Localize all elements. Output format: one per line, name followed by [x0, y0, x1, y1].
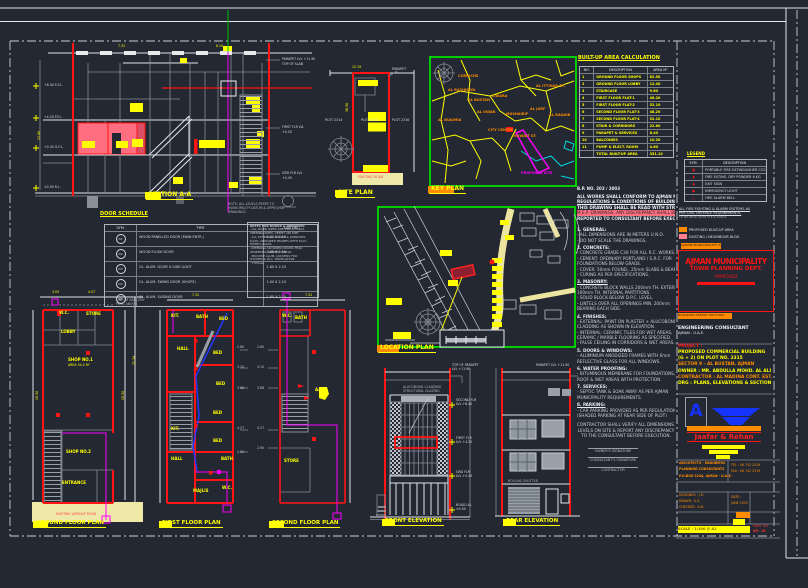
area-row-no: 6: [580, 109, 593, 115]
annotation-text: TOP OF SLAB: [282, 63, 303, 66]
stamp-line3: APPROVED: [679, 274, 773, 279]
door-symbol-cell: D1: [105, 232, 136, 246]
annotation-text: +0.45: [282, 177, 292, 180]
note-line: - FALSE CEILING IN CORRIDORS & WET AREAS…: [577, 340, 675, 345]
rear-elevation-title-label: REAR ELEVATION: [506, 518, 558, 524]
annotation-text: BED: [213, 351, 222, 355]
legend-row: ◆ EXIT SIGN: [685, 180, 766, 187]
area-row-no: 5: [580, 102, 593, 108]
annotation-text: TEL : 06 742 2318: [731, 464, 760, 467]
note-line: - CURING AS PER SPECIFICATIONS.: [577, 272, 675, 277]
annotation-text: 3.66: [237, 387, 244, 390]
annotation-text: 3.10: [237, 366, 244, 369]
key-plan-area-label: AL OWAN: [477, 110, 495, 114]
note-line: - SEPTIC TANK & SOAK AWAY AS PER AJMAN: [577, 389, 675, 394]
annotation-text: 2.80: [237, 346, 244, 349]
annotation-text: EXISTING ASPHALT ROAD: [56, 513, 96, 516]
annotation-text: AREA 54.0 M²: [68, 364, 90, 367]
area-row-desc: FIRST FLOOR FLAT-1: [593, 95, 646, 101]
legend-row: ● EMERGENCY LIGHT: [685, 187, 766, 194]
annotation-text: PLOT 2314: [325, 119, 342, 122]
second-floor-title-label: SECOND FLOOR PLAN: [272, 520, 338, 526]
door-type-cell: WOOD FLUSH DOOR: [136, 247, 263, 261]
annotation-text: B.P. NO. 203 / 2003: [577, 187, 620, 191]
annotation-text: A/C: [315, 388, 323, 392]
annotation-text: 36.58: [346, 103, 349, 112]
stamp-underline: [697, 282, 755, 285]
area-row-desc: GROUND FLOOR SHOPS: [593, 74, 646, 80]
fire-note: ALL FIRE FIGHTING & ALARM SYSTEMS ASPER …: [679, 207, 750, 220]
annotation-text: +0.45 G.F.L.: [44, 146, 63, 149]
key-plan-area-label: KUWAIT ST.: [514, 134, 537, 138]
area-row-no: 1: [580, 74, 593, 80]
annotation-text: LVL +4.20: [456, 441, 472, 444]
key-plan-area-label: PROPOSED SITE: [521, 171, 552, 175]
door-type-cell: GL. ALUM. SLIDING DOOR: [136, 292, 263, 306]
area-calc-row: 10 BALCONIES 10.20: [580, 136, 673, 143]
annotation-text: DATE :: [731, 496, 741, 499]
area-row-value: 12.40: [647, 81, 673, 87]
section-title-label: SECTION A-A: [148, 191, 191, 198]
door-symbol-icon: D4: [116, 279, 126, 289]
area-row-desc: PUMP & ELECT. ROOM: [593, 144, 646, 150]
area-row-value: 48.20: [647, 95, 673, 101]
legend-symbol-icon: ◆: [685, 181, 702, 187]
legend-symbol-icon: ▣: [685, 167, 702, 173]
note-line: MUNICIPALITY REQUIREMENTS.: [577, 395, 675, 400]
area-swatches: PROPOSED BUILT-UP AREA EXISTING / NEIGHB…: [679, 225, 740, 239]
project-text-block: PROJECT :PROPOSED COMMERCIAL BUILDING(G …: [678, 344, 772, 387]
note-line: REGULATIONS & CONDITIONS OF BUILDING PER…: [577, 199, 675, 204]
area-header-desc: DESCRIPTION: [593, 67, 646, 73]
legend-table: SYM. DESCRIPTION ▣ PORTABLE FIRE EXTINGU…: [684, 159, 767, 202]
note-line: - BITUMINOUS MEMBRANE FOR FOUNDATIONS,: [577, 371, 675, 376]
swatch-color-box: [679, 234, 687, 239]
annotation-text: 4.27: [237, 427, 244, 430]
consultant-logo: A: [685, 397, 707, 427]
note-line: REFLECTIVE GLASS FOR ALL WINDOWS.: [577, 359, 675, 364]
legend-rows: ▣ PORTABLE FIRE EXTINGUISHER CO2 ▮ FIRE …: [685, 166, 766, 201]
signature-line: OWNER'S SIGNATURE: [588, 448, 638, 453]
annotation-text: 19.50: [122, 391, 125, 400]
note-line: - ALUMINIUM ANODIZED FRAMES WITH 6mm: [577, 353, 675, 358]
legend-row: ▮ FIRE EXTING. DRY POWDER 6 KG: [685, 173, 766, 180]
annotation-text: 3.66: [257, 387, 264, 390]
note-line: - DO NOT SCALE THE DRAWINGS.: [577, 238, 675, 243]
annotation-text: 12.60: [38, 131, 41, 140]
note-line: - ALL DIMENSIONS ARE IN METERS U.N.O.: [577, 232, 675, 237]
stamp-line2: TOWN PLANNING DEPT.: [679, 266, 773, 272]
annotation-text: PLANNING CONSULTANTS: [679, 468, 724, 471]
door-symbol-cell: D5: [105, 292, 136, 306]
legend-desc-cell: FIRE EXTING. DRY POWDER 6 KG: [702, 174, 766, 180]
area-calc-header-row: NO. DESCRIPTION AREA M²: [580, 67, 673, 73]
area-row-value: 8.40: [647, 130, 673, 136]
legend-symbol-icon: ▮: [685, 174, 702, 180]
area-calc-row: 4 FIRST FLOOR FLAT-1 48.20: [580, 94, 673, 101]
annotation-text: STORE: [284, 459, 299, 463]
area-calc-row: 3 STAIRCASE 9.80: [580, 87, 673, 94]
key-plan-area-label: LIWARA: [492, 94, 507, 98]
area-row-no: 3: [580, 88, 593, 94]
legend-row: △ FIRE ALARM BELL: [685, 194, 766, 201]
key-plan-area-label: AL JURF: [530, 107, 545, 111]
legend-symbol-icon: ●: [685, 188, 702, 194]
legend-title: LEGEND: [687, 151, 705, 156]
annotation-text: EXISTING ROAD: [358, 176, 383, 179]
note-line: REPORTED TO CONSULTANT BEFORE EXECUTION.: [577, 216, 675, 221]
annotation-text: +8.40 S.F.L.: [44, 84, 63, 87]
annotation-text: PARAPET LVL +11.90: [282, 58, 315, 61]
legend-header-row: SYM. DESCRIPTION: [685, 160, 766, 166]
annotation-text: BED: [216, 382, 225, 386]
annotation-text: AR - 01: [753, 530, 766, 533]
door-type-cell: WOOD PANELLED DOOR (MAIN ENTR.): [136, 232, 263, 246]
area-row-value: 48.20: [647, 109, 673, 115]
key-plan-area-label: CITY CENTRE: [488, 128, 513, 132]
legend-row: ▣ PORTABLE FIRE EXTINGUISHER CO2: [685, 166, 766, 173]
swatch-rows: PROPOSED BUILT-UP AREA EXISTING / NEIGHB…: [679, 227, 740, 239]
key-plan-area-label: AL ITTIHAD ST.: [536, 84, 565, 88]
municipality-stamp: AJMAN MUNICIPALITY TOWN PLANNING DEPT. A…: [678, 250, 774, 312]
door-notes-lines: NOTES FOR DOORS & WINDOWS:- ALL DOOR SIZ…: [250, 225, 317, 266]
annotation-text: BATH: [221, 457, 233, 461]
area-row-desc: STAIRCASE: [593, 88, 646, 94]
annotation-text: DESIGNED : J.R.: [679, 494, 704, 497]
annotation-text: P.O.BOX 2244, AJMAN - U.A.E.: [679, 475, 732, 478]
area-calc-row: 7 SECOND FLOOR FLAT-4 52.10: [580, 115, 673, 122]
annotation-text: BATH: [196, 315, 208, 319]
annotation-text: W.C.: [282, 314, 292, 318]
annotation-text: 3.05: [52, 291, 59, 294]
annotation-text: LVL +8.40: [456, 403, 472, 406]
door-note-line: - TYPICAL: [250, 262, 317, 266]
area-row-no: [580, 151, 593, 157]
area-row-value: 4.60: [647, 144, 673, 150]
annotation-text: STRUCTURAL GLAZING: [403, 390, 440, 393]
annotation-text: FAX : 06 742 2319: [731, 470, 760, 473]
annotation-text: ROLLING SHUTTER: [508, 480, 538, 483]
annotation-text: +4.20: [282, 131, 292, 134]
area-calc-row: 11 PUMP & ELECT. ROOM 4.60: [580, 143, 673, 150]
swatch-row: EXISTING / NEIGHBOUR BLDG.: [679, 234, 740, 239]
note-line: [577, 221, 675, 225]
annotation-text: PARAPET LVL +11.90: [536, 364, 569, 367]
note-line: (SHADED PARKING AT REAR SIDE OF PLOT): [577, 413, 675, 418]
annotation-text: BATH: [295, 316, 307, 320]
annotation-layer: SECTION A-A SITE PLAN KEY PLAN LOCATION …: [0, 0, 808, 588]
annotation-text: JUNE 2003: [731, 502, 748, 505]
legend-header-sym: SYM.: [685, 160, 702, 166]
annotation-text: 2.90: [257, 447, 264, 450]
annotation-text: GRD FLR LVL: [282, 172, 302, 175]
scale-bar: SCALE : 1:100 @ A1: [678, 526, 750, 533]
door-schedule-header-sym: SYM.: [105, 225, 136, 231]
annotation-text: +4.20 F.F.L.: [44, 116, 62, 119]
key-plan-area-label: AL RASHIDIYA: [448, 88, 475, 92]
project-line: OWNER : MR. ABDULLA MOHD. AL ALI: [678, 369, 772, 375]
swatch-row: PROPOSED BUILT-UP AREA: [679, 227, 740, 232]
area-row-desc: PARAPET & SERVICES: [593, 130, 646, 136]
legend-desc-cell: EMERGENCY LIGHT: [702, 188, 766, 194]
legend-desc-cell: EXIT SIGN: [702, 181, 766, 187]
signature-lines: OWNER'S SIGNATURECONSULTANT'S SIGNATUREC…: [588, 448, 638, 472]
annotation-text: KIT.: [171, 314, 179, 318]
legend-symbol-icon: △: [685, 195, 702, 201]
door-type-cell: GL. ALUM. DOOR & SIDE LIGHT: [136, 262, 263, 276]
area-row-value: 9.80: [647, 88, 673, 94]
front-elevation-title-label: FRONT ELEVATION: [385, 518, 442, 524]
annotation-text: DRAWN : S.K.: [679, 500, 700, 503]
annotation-text: 6.10: [216, 45, 223, 48]
area-row-no: 7: [580, 116, 593, 122]
area-calc-row: TOTAL BUILT-UP AREA 351.10: [580, 150, 673, 157]
area-row-no: 4: [580, 95, 593, 101]
permit-bar: BUILDING PERMIT SECTION: [678, 313, 732, 319]
annotation-text: BED: [213, 411, 222, 415]
annotation-text: 2.80: [257, 346, 264, 349]
section-title: SECTION A-A: [146, 191, 193, 200]
area-calc-row: 9 PARAPET & SERVICES 8.40: [580, 129, 673, 136]
annotation-text: ±0.00: [456, 508, 466, 511]
area-calc-row: 8 STAIR & CORRIDORS 22.60: [580, 122, 673, 129]
door-symbol-icon: D1: [116, 234, 126, 244]
key-plan-area-label: CORNICHE: [458, 74, 478, 78]
general-notes: ALL WORKS SHALL CONFORM TO AJMAN MUNICIP…: [577, 194, 675, 438]
firm-block: ENGINEERING CONSULTANT AJMAN - U.A.E.: [678, 326, 749, 335]
legend-desc-cell: PORTABLE FIRE EXTINGUISHER CO2: [702, 167, 766, 173]
note-line: BEARING EACH SIDE.: [577, 306, 675, 311]
area-row-desc: SECOND FLOOR FLAT-3: [593, 109, 646, 115]
annotation-text: 19.50: [36, 391, 39, 400]
annotation-text: PLOT 2316: [392, 119, 409, 122]
annotation-text: MAJLIS: [193, 489, 208, 493]
annotation-text: W.C.: [222, 486, 232, 490]
area-row-desc: TOTAL BUILT-UP AREA: [593, 151, 646, 157]
area-row-no: 9: [580, 130, 593, 136]
annotation-text: DWG. NO.: [753, 525, 769, 528]
annotation-text: 3.10: [257, 366, 264, 369]
annotation-text: KIT.: [171, 427, 179, 431]
stamp-line1: AJMAN MUNICIPALITY: [679, 257, 773, 266]
first-floor-title-label: FIRST FLOOR PLAN: [162, 520, 221, 526]
annotation-text: ARCHITECTS - ENGINEERS: [679, 462, 725, 465]
swatch-label: EXISTING / NEIGHBOUR BLDG.: [689, 235, 740, 239]
area-row-value: 351.10: [647, 151, 673, 157]
key-plan-area-label: AL BUSTAN: [468, 98, 490, 102]
signature-line: CONTRACTOR: [588, 467, 638, 472]
logo-divider-bar: [687, 426, 761, 431]
area-row-value: 10.20: [647, 137, 673, 143]
annotation-text: BED: [219, 317, 228, 321]
note-line: M.E.P. DRAWINGS. ANY DISCREPANCY SHALL B…: [577, 210, 675, 215]
note-line: CONTRACTOR SHALL VERIFY ALL DIMENSIONS &: [577, 422, 675, 427]
area-row-desc: BALCONIES: [593, 137, 646, 143]
area-header-area: AREA M²: [647, 67, 673, 73]
annotation-text: STORE: [86, 312, 101, 316]
door-schedule-header-type: TYPE: [136, 225, 263, 231]
first-floor-title: FIRST FLOOR PLAN: [160, 520, 223, 528]
fire-note-line: TO BE READ WITH M.E.P. DWGS.: [679, 216, 750, 220]
area-row-value: 52.10: [647, 116, 673, 122]
cad-drawing-canvas[interactable]: SECTION A-A SITE PLAN KEY PLAN LOCATION …: [0, 0, 808, 588]
door-type-cell: GL. ALUM. SWING DOOR (SHOPS): [136, 277, 263, 291]
annotation-text: LOBBY: [61, 330, 76, 334]
area-row-no: 8: [580, 123, 593, 129]
key-plan-area-label: MUSHAIRIF: [506, 112, 528, 116]
annotation-text: HALL: [171, 457, 183, 461]
annotation-text: ±0.00 R.L.: [44, 186, 61, 189]
annotation-text: HALL: [177, 347, 189, 351]
area-row-no: 2: [580, 81, 593, 87]
site-plan-title-label: SITE PLAN: [338, 189, 373, 196]
location-plan-title: LOCATION PLAN: [378, 344, 436, 353]
consultant-name: Jaafar & Rehan: [687, 432, 761, 442]
area-row-value: 52.10: [647, 102, 673, 108]
key-plan-title: KEY PLAN: [429, 185, 466, 194]
annotation-text: DRAWINGS.: [228, 211, 247, 214]
annotation-text: 4.27: [257, 427, 264, 430]
legend-header-desc: DESCRIPTION: [702, 160, 766, 166]
swatch-label: PROPOSED BUILT-UP AREA: [689, 228, 734, 232]
area-row-value: 22.60: [647, 123, 673, 129]
area-calc-row: 2 GROUND FLOOR LOBBY 12.40: [580, 80, 673, 87]
annotation-text: ENTRANCE: [62, 481, 86, 485]
area-row-desc: STAIR & CORRIDORS: [593, 123, 646, 129]
area-calc-table: NO. DESCRIPTION AREA M² 1 GROUND FLOOR S…: [579, 66, 674, 158]
door-notes-box: NOTES FOR DOORS & WINDOWS:- ALL DOOR SIZ…: [247, 222, 319, 298]
area-row-desc: SECOND FLOOR FLAT-4: [593, 116, 646, 122]
project-line: DRG : PLANS, ELEVATIONS & SECTION: [678, 381, 772, 387]
annotation-text: LVL +11.90: [452, 368, 470, 371]
approval-bar: AJMAN MUNICIPALITY APPROVAL: [681, 243, 721, 249]
annotation-text: 21.34: [133, 356, 136, 365]
door-symbol-cell: D4: [105, 277, 136, 291]
annotation-text: 7.32: [118, 45, 125, 48]
signature-block: OWNER'S SIGNATURECONSULTANT'S SIGNATUREC…: [588, 444, 638, 472]
annotation-text: SHOP NO.2: [66, 450, 91, 454]
door-symbol-cell: D2: [105, 247, 136, 261]
annotation-text: 2.90: [237, 451, 244, 454]
rear-elevation-title: REAR ELEVATION: [504, 518, 560, 526]
general-notes-lines: ALL WORKS SHALL CONFORM TO AJMAN MUNICIP…: [577, 194, 675, 438]
annotation-text: CHECKED : A.M.: [679, 506, 704, 509]
ground-floor-title-label: GROUND FLOOR PLAN: [36, 520, 104, 526]
annotation-text: FIRST FLR LVL: [282, 126, 304, 129]
area-calc-row: 5 FIRST FLOOR FLAT-2 52.10: [580, 101, 673, 108]
note-line: - CONCRETE GRADE C30 FOR ALL R.C. WORKS.: [577, 250, 675, 255]
key-plan-area-label: AL NUAIMIA: [438, 118, 461, 122]
signature-line: CONSULTANT'S SIGNATURE: [588, 457, 638, 462]
door-schedule-title: DOOR SCHEDULE: [100, 211, 148, 217]
annotation-text: W.C.: [59, 311, 69, 315]
swatch-color-box: [679, 227, 687, 232]
annotation-text: SHOP NO.1: [68, 358, 93, 362]
annotation-text: 4.57: [88, 291, 95, 294]
legend-desc-cell: FIRE ALARM BELL: [702, 195, 766, 201]
annotation-text: PLOT 2315: [361, 119, 378, 122]
location-plan-title-label: LOCATION PLAN: [380, 344, 434, 351]
key-plan-area-label: AL RAQAIB: [549, 113, 570, 117]
annotation-text: LVL +0.45: [456, 475, 472, 478]
annotation-text: BED: [213, 439, 222, 443]
area-calc-rows: 1 GROUND FLOOR SHOPS 82.50 2 GROUND FLOO…: [580, 73, 673, 157]
area-calc-title: BUILT-UP AREA CALCULATION: [578, 55, 660, 61]
area-row-desc: GROUND FLOOR LOBBY: [593, 81, 646, 87]
ground-floor-title: GROUND FLOOR PLAN: [34, 520, 106, 528]
key-plan-title-label: KEY PLAN: [431, 185, 464, 192]
area-calc-row: 6 SECOND FLOOR FLAT-3 48.20: [580, 108, 673, 115]
door-symbol-icon: D3: [116, 264, 126, 274]
area-header-no: NO.: [580, 67, 593, 73]
area-row-no: 11: [580, 144, 593, 150]
second-floor-title: SECOND FLOOR PLAN: [270, 520, 340, 528]
front-elevation-title: FRONT ELEVATION: [383, 518, 444, 526]
area-row-no: 10: [580, 137, 593, 143]
annotation-text: 12.19: [352, 66, 361, 69]
note-line: TO THE CONSULTANT BEFORE EXECUTION.: [577, 433, 675, 438]
note-line: ROOF & WET AREAS WITH PROTECTION.: [577, 377, 675, 382]
firm-line2: AJMAN - U.A.E.: [678, 331, 749, 335]
door-symbol-cell: D3: [105, 262, 136, 276]
door-symbol-icon: D2: [116, 249, 126, 259]
annotation-text: PARAPET: [392, 68, 406, 71]
fire-note-lines: ALL FIRE FIGHTING & ALARM SYSTEMS ASPER …: [679, 207, 750, 220]
project-lines: PROJECT :PROPOSED COMMERCIAL BUILDING(G …: [678, 344, 772, 387]
area-row-desc: FIRST FLOOR FLAT-2: [593, 102, 646, 108]
area-calc-row: 1 GROUND FLOOR SHOPS 82.50: [580, 73, 673, 80]
site-plan-title: SITE PLAN: [336, 189, 375, 198]
area-row-value: 82.50: [647, 74, 673, 80]
door-symbol-icon: D5: [116, 294, 126, 304]
